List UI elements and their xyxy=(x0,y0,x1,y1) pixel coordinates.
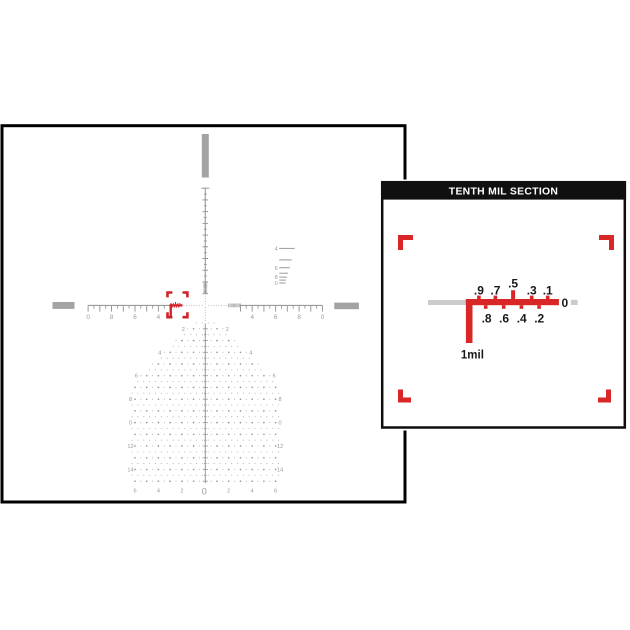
svg-text:2: 2 xyxy=(180,489,183,495)
svg-text:4: 4 xyxy=(157,489,160,495)
svg-text:6: 6 xyxy=(133,314,137,321)
svg-text:.6: .6 xyxy=(499,312,509,326)
svg-text:8: 8 xyxy=(129,397,132,403)
svg-text:0: 0 xyxy=(129,421,132,427)
svg-text:4: 4 xyxy=(275,247,278,253)
svg-text:6: 6 xyxy=(133,489,136,495)
svg-text:6: 6 xyxy=(274,489,277,495)
svg-text:0: 0 xyxy=(202,487,207,497)
svg-text:0: 0 xyxy=(562,296,569,310)
svg-text:.2: .2 xyxy=(534,312,544,326)
svg-text:8: 8 xyxy=(110,314,114,321)
svg-text:0: 0 xyxy=(321,314,325,321)
svg-text:TENTH MIL SECTION: TENTH MIL SECTION xyxy=(449,187,558,198)
svg-text:1mil: 1mil xyxy=(461,350,484,362)
svg-text:.3: .3 xyxy=(527,283,537,297)
svg-text:2: 2 xyxy=(182,327,185,333)
svg-text:.7: .7 xyxy=(490,283,500,297)
svg-text:4: 4 xyxy=(251,489,254,495)
svg-text:4: 4 xyxy=(249,350,252,356)
svg-text:12: 12 xyxy=(127,444,133,450)
svg-text:.5: .5 xyxy=(508,276,518,290)
svg-text:8: 8 xyxy=(279,397,282,403)
svg-text:6: 6 xyxy=(275,266,278,272)
svg-text:6: 6 xyxy=(274,314,278,321)
svg-text:.8: .8 xyxy=(482,312,492,326)
svg-text:0: 0 xyxy=(86,314,90,321)
svg-text:2: 2 xyxy=(227,489,230,495)
svg-text:2: 2 xyxy=(226,327,229,333)
svg-text:8: 8 xyxy=(297,314,301,321)
svg-text:.4: .4 xyxy=(517,312,527,326)
svg-text:12: 12 xyxy=(277,444,283,450)
svg-text:14: 14 xyxy=(277,468,283,474)
svg-text:14: 14 xyxy=(127,468,133,474)
svg-text:0: 0 xyxy=(279,421,282,427)
svg-text:0: 0 xyxy=(275,281,278,287)
svg-text:4: 4 xyxy=(250,314,254,321)
svg-text:6: 6 xyxy=(135,374,138,380)
svg-text:4: 4 xyxy=(158,350,161,356)
svg-text:4: 4 xyxy=(157,314,161,321)
svg-text:.9: .9 xyxy=(474,283,484,297)
svg-text:.1: .1 xyxy=(543,283,553,297)
svg-text:6: 6 xyxy=(273,374,276,380)
